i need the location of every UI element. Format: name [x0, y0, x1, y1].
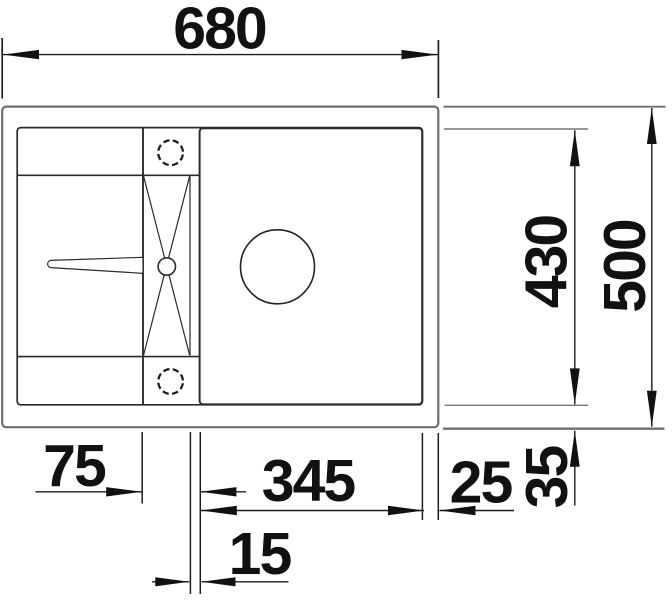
- svg-text:75: 75: [43, 433, 106, 499]
- svg-text:25: 25: [450, 450, 513, 516]
- svg-text:345: 345: [262, 448, 356, 514]
- svg-text:430: 430: [514, 216, 580, 309]
- svg-text:500: 500: [592, 220, 658, 313]
- svg-text:680: 680: [173, 0, 266, 62]
- svg-text:15: 15: [229, 521, 292, 587]
- svg-text:35: 35: [514, 446, 580, 509]
